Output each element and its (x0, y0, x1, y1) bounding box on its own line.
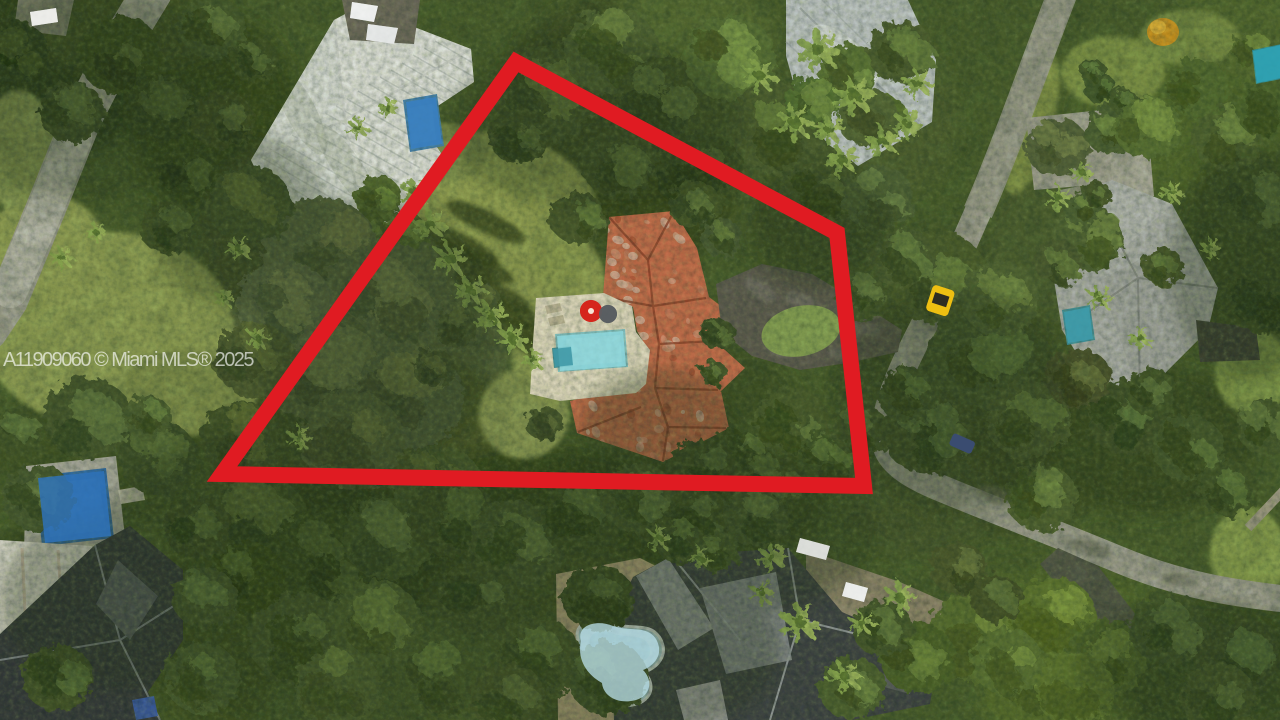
svg-text:A11909060 © Miami MLS® 2025: A11909060 © Miami MLS® 2025 (3, 349, 255, 371)
